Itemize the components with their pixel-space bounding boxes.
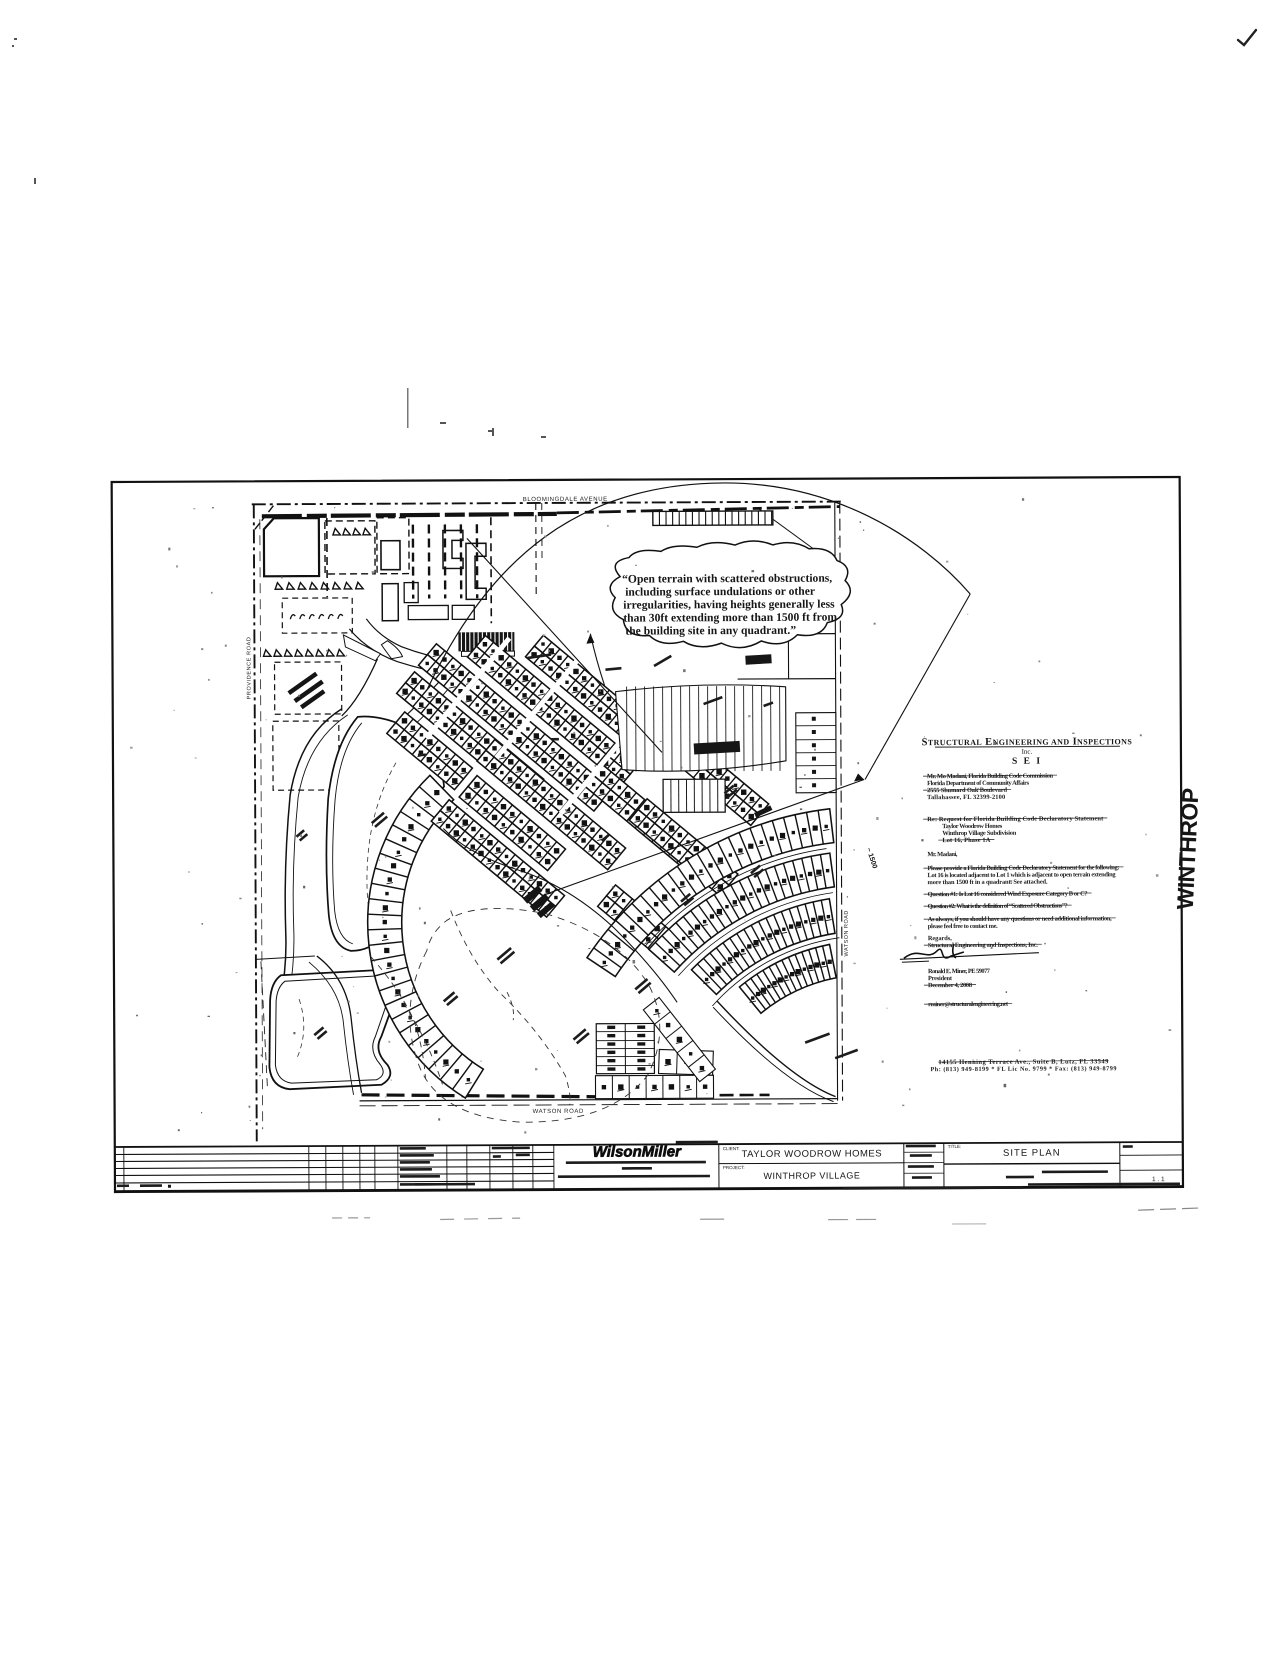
svg-text:CLIENT:: CLIENT:	[723, 1146, 740, 1151]
svg-text:Ronald E. Miner, PE 59077: Ronald E. Miner, PE 59077	[928, 968, 991, 975]
svg-text:PROJECT:: PROJECT:	[723, 1165, 745, 1170]
svg-text:Mr. Madani,: Mr. Madani,	[927, 851, 957, 858]
svg-text:rminer@structuralengineering.n: rminer@structuralengineering.net	[928, 1001, 1009, 1008]
svg-text:including surface undulations: including surface undulations or other	[625, 585, 815, 599]
svg-text:1 . 1: 1 . 1	[1152, 1176, 1165, 1183]
svg-text:irregularities, having heights: irregularities, having heights generally…	[623, 598, 835, 612]
svg-text:S E I: S E I	[1012, 757, 1042, 767]
svg-text:TAYLOR WOODROW HOMES: TAYLOR WOODROW HOMES	[742, 1148, 883, 1160]
svg-text:WATSON ROAD: WATSON ROAD	[844, 910, 850, 956]
svg-text:the building site in any quadr: the building site in any quadrant.”	[625, 624, 796, 638]
svg-text:please feel free to contact me: please feel free to contact me.	[928, 923, 998, 930]
svg-text:Tallahassee, FL 32399-2100: Tallahassee, FL 32399-2100	[927, 794, 1005, 801]
svg-text:PROVIDENCE ROAD: PROVIDENCE ROAD	[246, 637, 252, 700]
svg-text:“Open terrain with scattered o: “Open terrain with scattered obstruction…	[622, 572, 832, 586]
svg-text:Lot 16, Phase 1A: Lot 16, Phase 1A	[942, 837, 990, 844]
svg-text:Inc.: Inc.	[1022, 748, 1033, 756]
svg-text:BLOOMINGDALE AVENUE: BLOOMINGDALE AVENUE	[523, 497, 608, 503]
svg-text:WATSON ROAD: WATSON ROAD	[533, 1109, 584, 1115]
svg-text:more than 1500 ft in a quadran: more than 1500 ft in a quadrant. See att…	[928, 879, 1048, 887]
svg-text:TITLE:: TITLE:	[948, 1144, 962, 1149]
svg-text:Ph: (813) 949-8199 * FL Lic: Ph: (813) 949-8199 * FL Lic No. 9799 * F…	[930, 1065, 1116, 1073]
svg-text:SITE PLAN: SITE PLAN	[1003, 1148, 1061, 1159]
svg-text:WINTHROP VILLAGE: WINTHROP VILLAGE	[763, 1170, 860, 1180]
svg-text:WilsonMiller: WilsonMiller	[593, 1143, 682, 1160]
svg-text:than 30ft extending more than: than 30ft extending more than 1500 ft fr…	[623, 611, 837, 625]
svg-text:December 4, 2008: December 4, 2008	[928, 982, 972, 989]
